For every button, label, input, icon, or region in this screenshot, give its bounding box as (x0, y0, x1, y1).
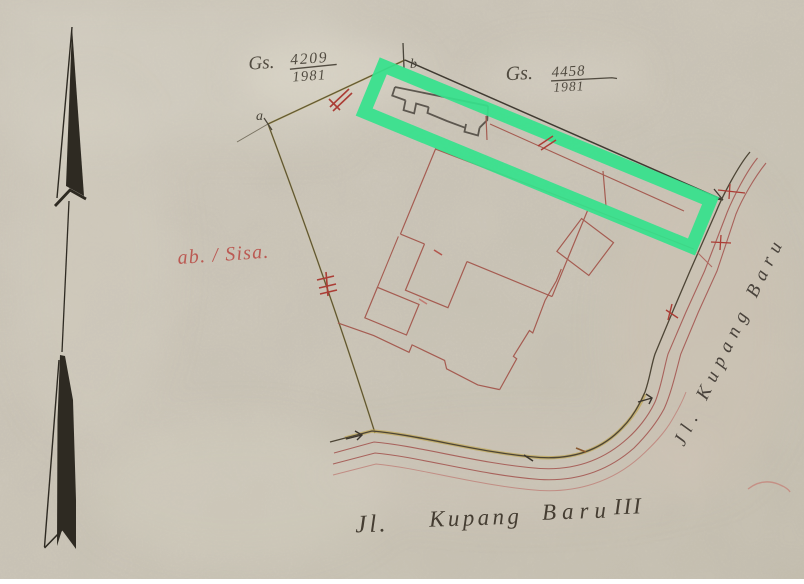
svg-text:Jl.: Jl. (355, 510, 389, 538)
svg-text:b: b (410, 57, 417, 72)
svg-text:Gs.: Gs. (248, 52, 275, 75)
svg-text:Baru: Baru (542, 497, 613, 524)
svg-text:III: III (612, 493, 643, 519)
svg-text:Kupang: Kupang (428, 504, 523, 532)
svg-text:1981: 1981 (292, 67, 327, 85)
svg-text:a: a (256, 109, 263, 124)
svg-text:Gs.: Gs. (505, 62, 533, 85)
